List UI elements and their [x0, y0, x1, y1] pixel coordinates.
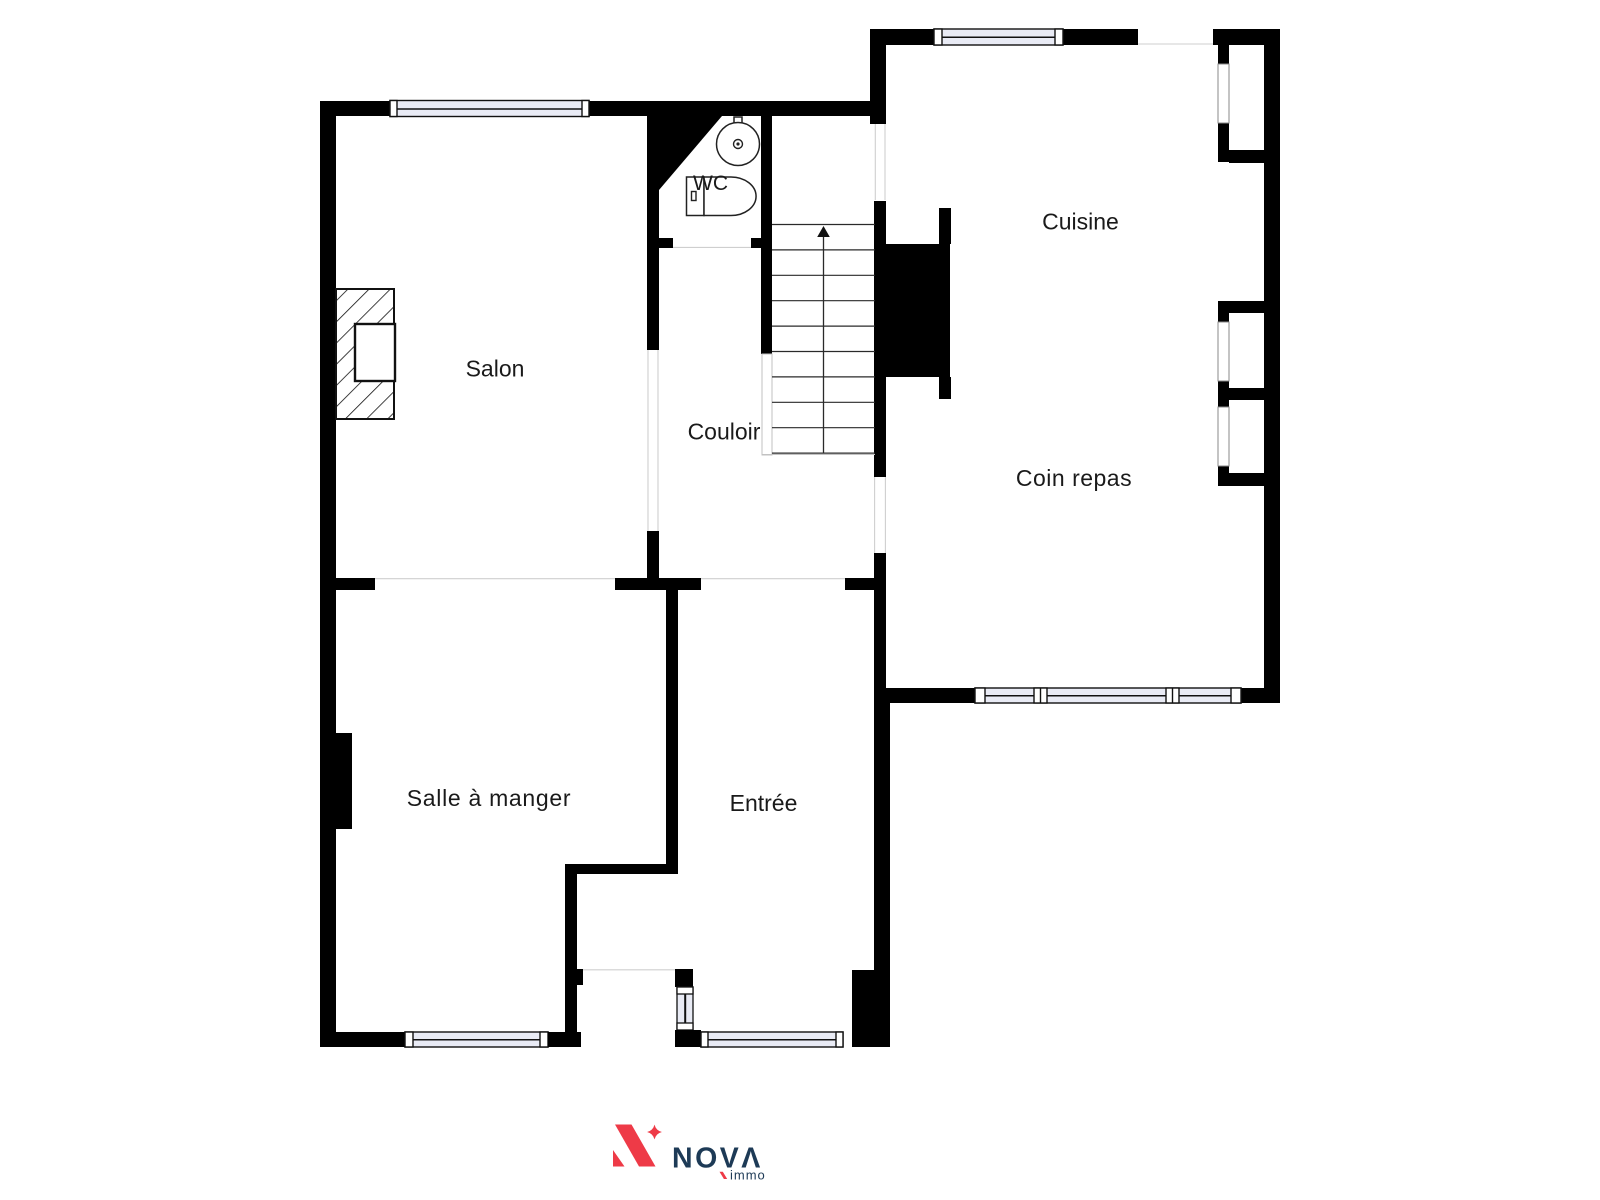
svg-text:Salon: Salon: [466, 356, 525, 382]
svg-text:Entrée: Entrée: [730, 790, 798, 816]
svg-text:Coin repas: Coin repas: [1016, 465, 1132, 491]
svg-text:immo: immo: [730, 1168, 766, 1183]
svg-text:Cuisine: Cuisine: [1042, 209, 1119, 235]
svg-text:Couloir: Couloir: [688, 419, 761, 445]
svg-text:WC: WC: [693, 172, 728, 195]
svg-text:Salle à manger: Salle à manger: [407, 785, 572, 811]
